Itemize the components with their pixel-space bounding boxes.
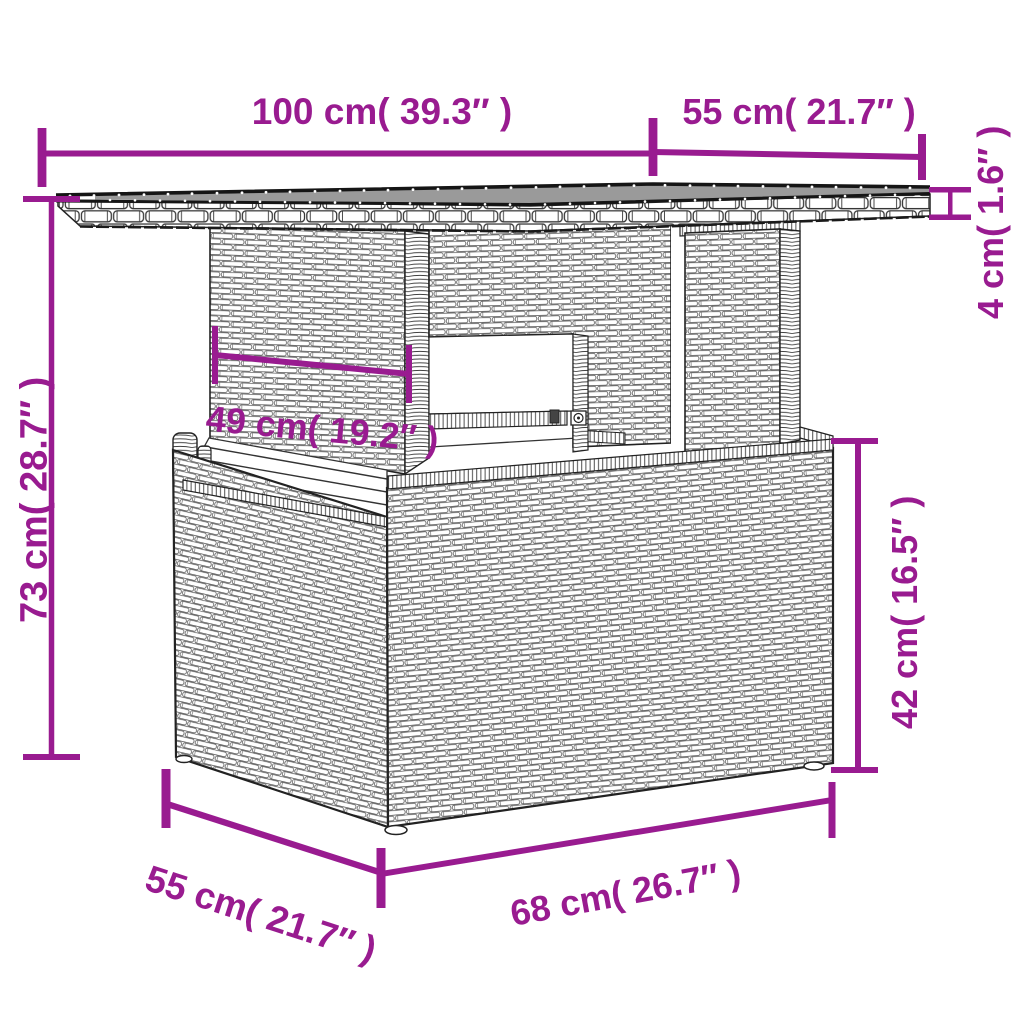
svg-text:73 cm( 28.7″ ): 73 cm( 28.7″ ) [14, 377, 56, 623]
svg-text:42 cm( 16.5″ ): 42 cm( 16.5″ ) [884, 496, 925, 729]
svg-text:4 cm( 1.6″ ): 4 cm( 1.6″ ) [970, 126, 1011, 319]
svg-text:55 cm( 21.7″ ): 55 cm( 21.7″ ) [682, 91, 915, 132]
svg-text:100 cm( 39.3″ ): 100 cm( 39.3″ ) [252, 91, 512, 132]
